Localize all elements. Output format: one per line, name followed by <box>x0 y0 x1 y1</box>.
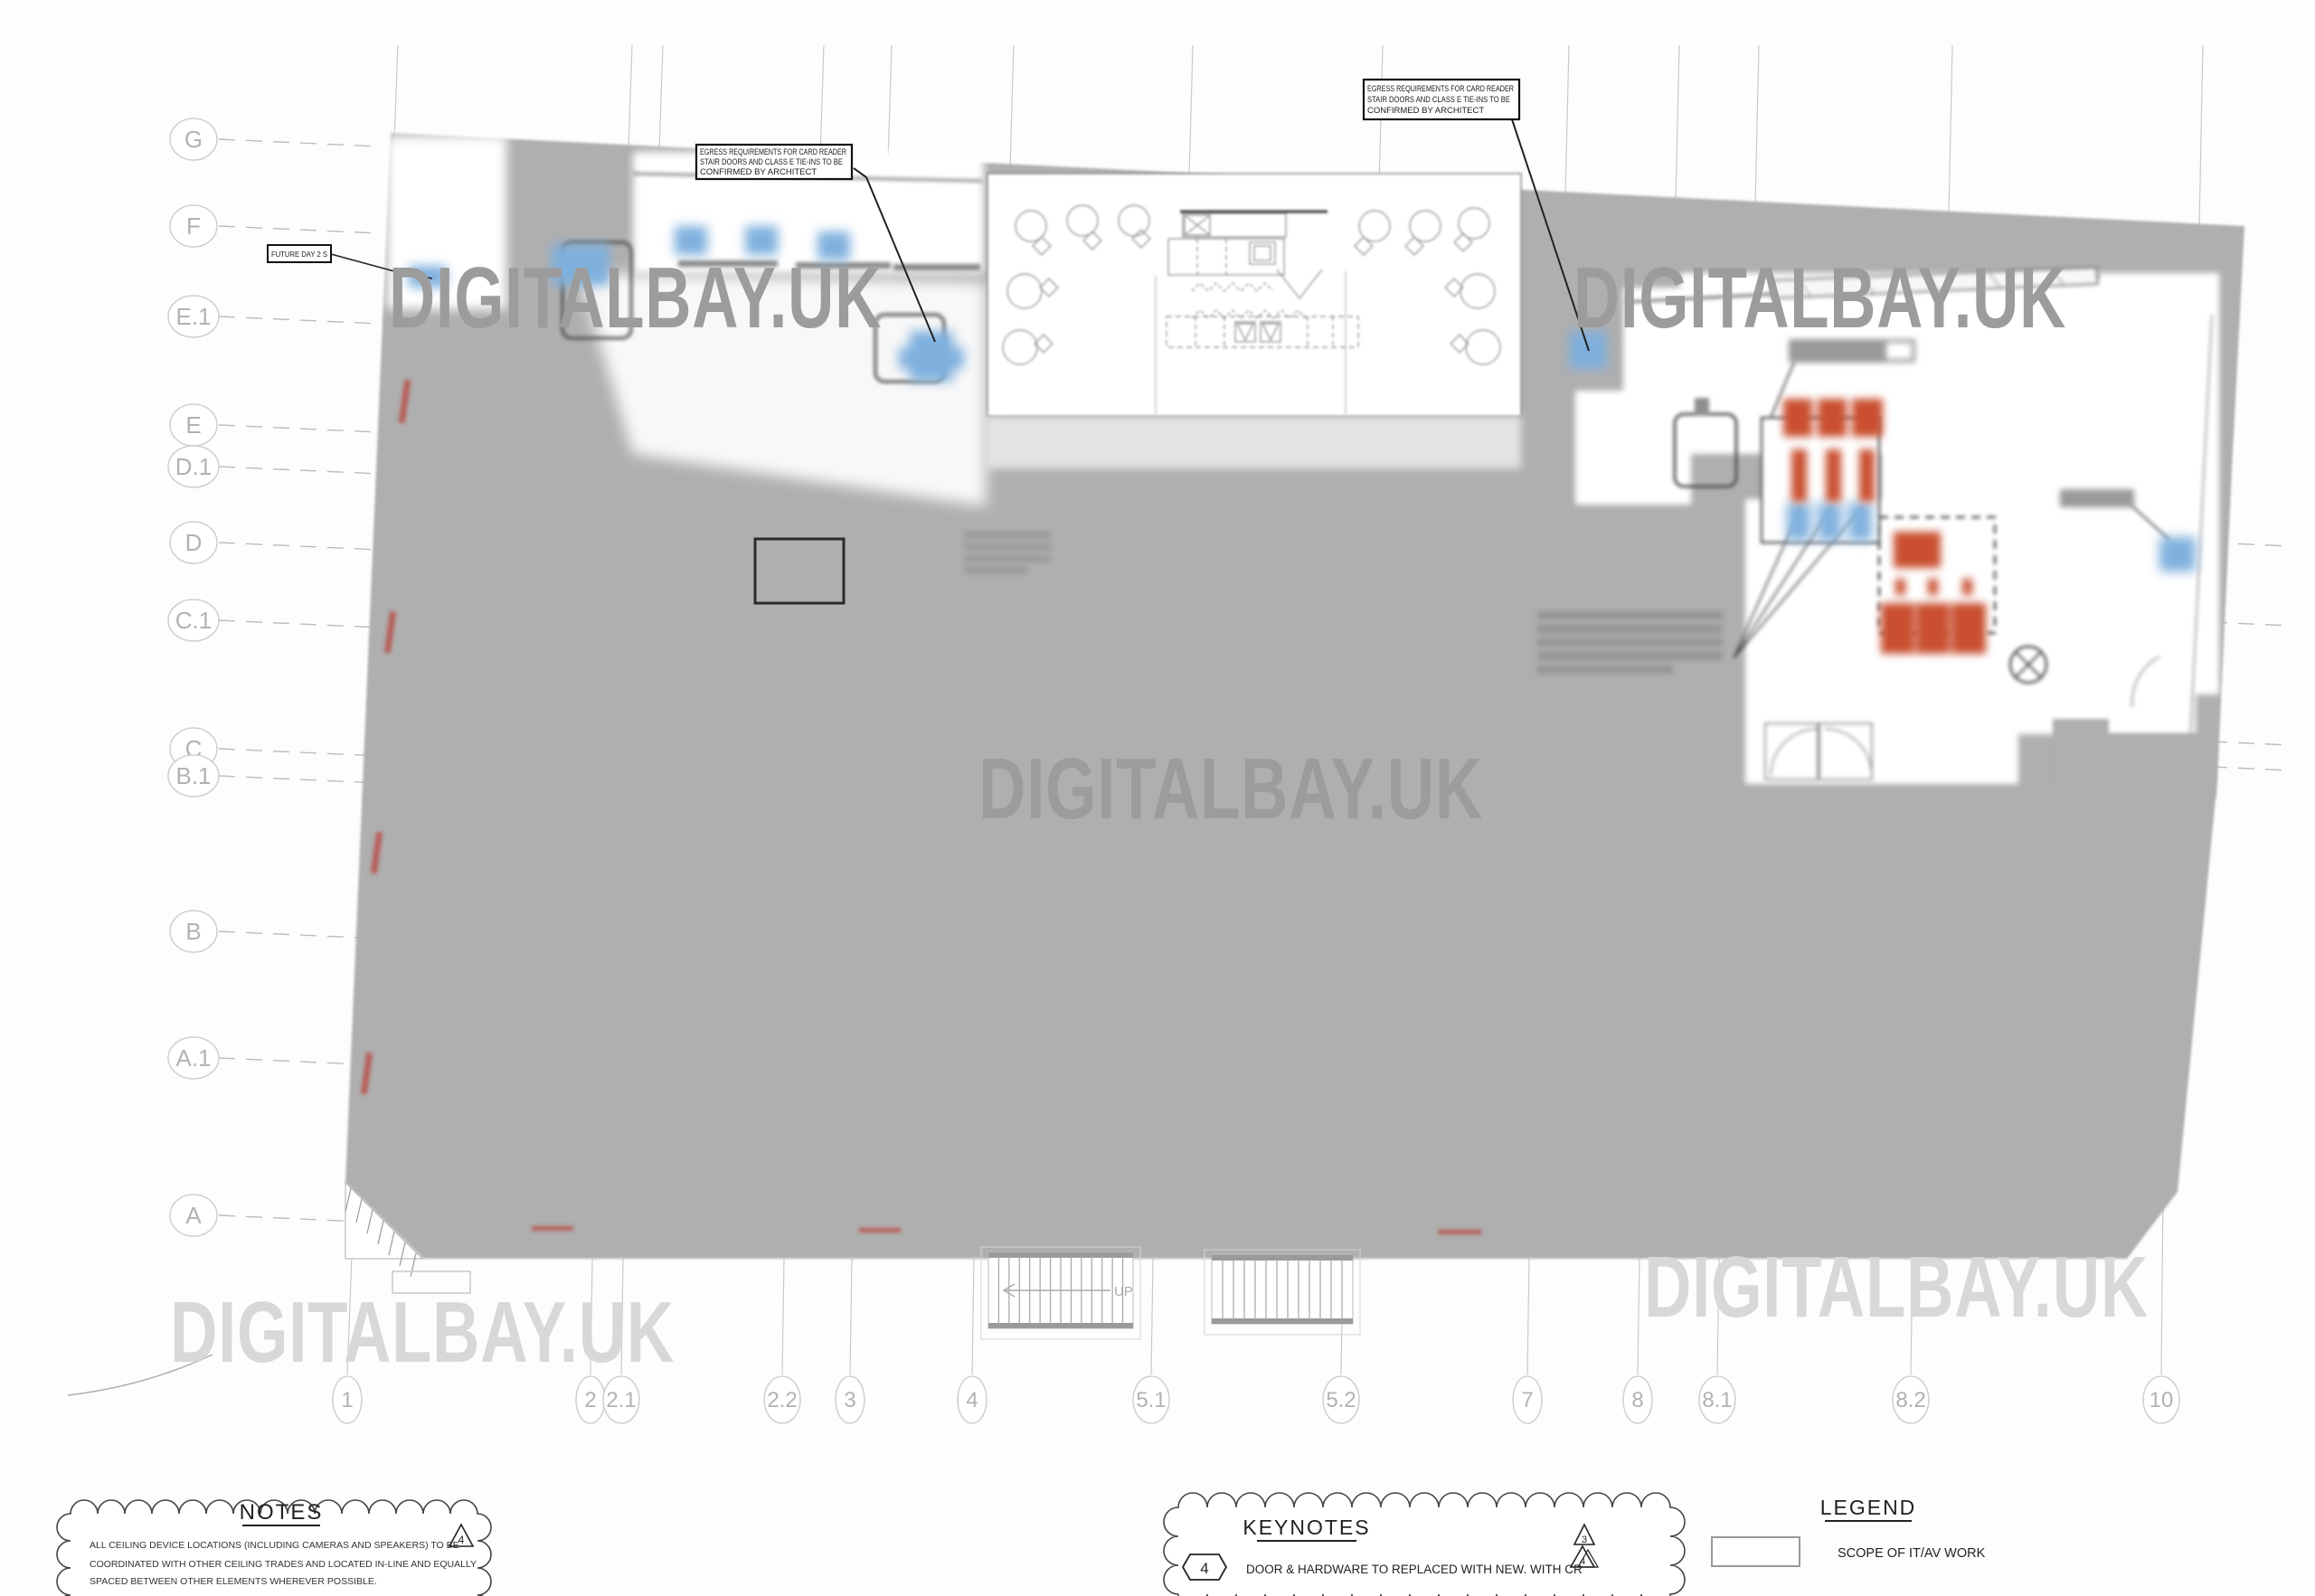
grid-bubble-label: C.1 <box>175 607 212 634</box>
grid-col-top-stub-2 <box>628 45 632 148</box>
watermark: DIGITALBAY.UK <box>170 1284 675 1381</box>
stair-up-label: UP <box>1114 1284 1133 1299</box>
legend-item-label: SCOPE OF IT/AV WORK <box>1838 1546 1986 1561</box>
egress-line: CONFIRMED BY ARCHITECT <box>700 167 817 177</box>
grid-bubble-label: 10 <box>2150 1388 2174 1412</box>
grid-col-top-stub-4 <box>1010 45 1014 167</box>
grid-row-line-C.1 <box>219 620 380 628</box>
grid-col-top-stub-5.1 <box>1189 45 1193 176</box>
grid-bubble-label: 3 <box>844 1388 855 1412</box>
watermark: DIGITALBAY.UK <box>978 741 1483 837</box>
grid-row-right-stub <box>2211 767 2290 770</box>
grid-bubble-label: 7 <box>1521 1388 1533 1412</box>
grid-row-line-E <box>219 425 380 432</box>
grid-col-bottom-stub-7 <box>1527 1259 1529 1374</box>
keynote-text: DOOR & HARDWARE TO REPLACED WITH NEW. WI… <box>1246 1563 1583 1576</box>
grid-col-bottom-stub-8 <box>1638 1259 1639 1374</box>
grid-bubble-label: 4 <box>966 1388 978 1412</box>
notes-line: SPACED BETWEEN OTHER ELEMENTS WHEREVER P… <box>90 1576 377 1587</box>
grid-bubble-label: B.1 <box>175 762 211 789</box>
grid-bubble-label: A <box>185 1202 202 1229</box>
grid-row-right-stub <box>2211 741 2290 745</box>
grid-bubble-label: D <box>185 529 203 556</box>
grid-bubble-label: 8.1 <box>1702 1388 1732 1412</box>
grid-row-line-B <box>219 931 380 939</box>
egress-line: STAIR DOORS AND CLASS E TIE-INS TO BE <box>700 157 843 167</box>
grid-col-bottom-stub-10 <box>2161 1186 2163 1374</box>
keynote-number: 4 <box>1200 1560 1208 1577</box>
room-bar-apron <box>987 416 1521 468</box>
egress-line: EGRESS REQUIREMENTS FOR CARD READER <box>1367 84 1514 94</box>
watermark: DIGITALBAY.UK <box>1644 1239 2149 1336</box>
grid-row-line-F <box>219 226 380 233</box>
grid-col-top-stub-2.2 <box>820 45 824 158</box>
keynotes-revision-number: 3 <box>1582 1535 1587 1545</box>
watermark: DIGITALBAY.UK <box>389 250 882 346</box>
keynotes-title: KEYNOTES <box>1243 1516 1370 1539</box>
egress-line: CONFIRMED BY ARCHITECT <box>1367 106 1484 116</box>
keynotes-cloud <box>1164 1493 1685 1596</box>
legend-title: LEGEND <box>1820 1496 1917 1519</box>
sheet-notes-band: NOTES ALL CEILING DEVICE LOCATIONS (INCL… <box>57 1493 1986 1596</box>
plan-canvas: GFE.1ED.1DC.1CB.1BA.1A122.12.2345.15.278… <box>0 0 2315 1596</box>
grid-col-bottom-stub-5.1 <box>1151 1259 1153 1374</box>
grid-col-bottom-stub-3 <box>850 1259 852 1374</box>
egress-line: STAIR DOORS AND CLASS E TIE-INS TO BE <box>1367 95 1510 105</box>
floor-plan-sheet: GFE.1ED.1DC.1CB.1BA.1A122.12.2345.15.278… <box>0 0 2315 1596</box>
grid-col-top-stub-2.1 <box>659 45 663 150</box>
grid-bubble-label: 5.2 <box>1326 1388 1356 1412</box>
future-label: FUTURE DAY 2 S <box>271 250 327 259</box>
grid-bubble-label: 1 <box>341 1388 353 1412</box>
grid-col-top-stub-3 <box>888 45 892 162</box>
notes-title: NOTES <box>240 1500 324 1525</box>
watermark: DIGITALBAY.UK <box>1573 250 2066 346</box>
grid-bubble-label: 8 <box>1631 1388 1643 1412</box>
grid-bubble-label: E <box>185 411 201 439</box>
grid-row-line-G <box>219 139 380 146</box>
grid-row-line-B.1 <box>219 776 380 783</box>
egress-line: EGRESS REQUIREMENTS FOR CARD READER <box>700 147 846 157</box>
grid-col-top-stub-8 <box>1676 45 1679 201</box>
grid-bubble-label: D.1 <box>175 453 212 480</box>
room-bar <box>987 174 1521 416</box>
grid-bubble-label: 2 <box>584 1388 596 1412</box>
grid-bubble-label: 2.1 <box>606 1388 636 1412</box>
notes-line: COORDINATED WITH OTHER CEILING TRADES AN… <box>90 1559 477 1570</box>
grid-row-line-D <box>219 543 380 550</box>
grid-col-top-stub-8.1 <box>1755 45 1759 205</box>
grid-bubble-label: E.1 <box>175 303 211 330</box>
grid-col-top-stub-7 <box>1565 45 1569 195</box>
notes-revision-number: 4 <box>458 1534 465 1546</box>
grid-row-line-D.1 <box>219 467 380 474</box>
egress-callout-1: EGRESS REQUIREMENTS FOR CARD READER STAI… <box>696 145 852 179</box>
grid-bubble-label: F <box>186 212 201 240</box>
grid-bubble-label: G <box>184 126 203 153</box>
legend-swatch-scope <box>1712 1537 1800 1566</box>
grid-bubble-label: 8.2 <box>1895 1388 1925 1412</box>
legend: LEGEND SCOPE OF IT/AV WORK <box>1712 1496 1986 1566</box>
grid-bubble-label: 2.2 <box>767 1388 797 1412</box>
grid-row-line-E.1 <box>219 316 380 324</box>
grid-bubble-label: 5.1 <box>1136 1388 1166 1412</box>
grid-col-top-stub-8.2 <box>1949 45 1952 214</box>
grid-bubble-label: A.1 <box>175 1044 211 1072</box>
egress-callout-2: EGRESS REQUIREMENTS FOR CARD READER STAI… <box>1364 80 1519 119</box>
grid-bubble-label: B <box>185 918 201 945</box>
grid-col-bottom-stub-4 <box>972 1259 974 1374</box>
grid-col-bottom-stub-2.2 <box>782 1259 784 1374</box>
stairs <box>981 1247 1360 1339</box>
keynotes-revision-number: 4 <box>1580 1556 1585 1567</box>
future-day2-callout: FUTURE DAY 2 S <box>268 245 331 262</box>
notes-line: ALL CEILING DEVICE LOCATIONS (INCLUDING … <box>90 1540 459 1551</box>
grid-col-top-stub-10 <box>2199 45 2203 227</box>
grid-row-line-C <box>219 749 380 756</box>
